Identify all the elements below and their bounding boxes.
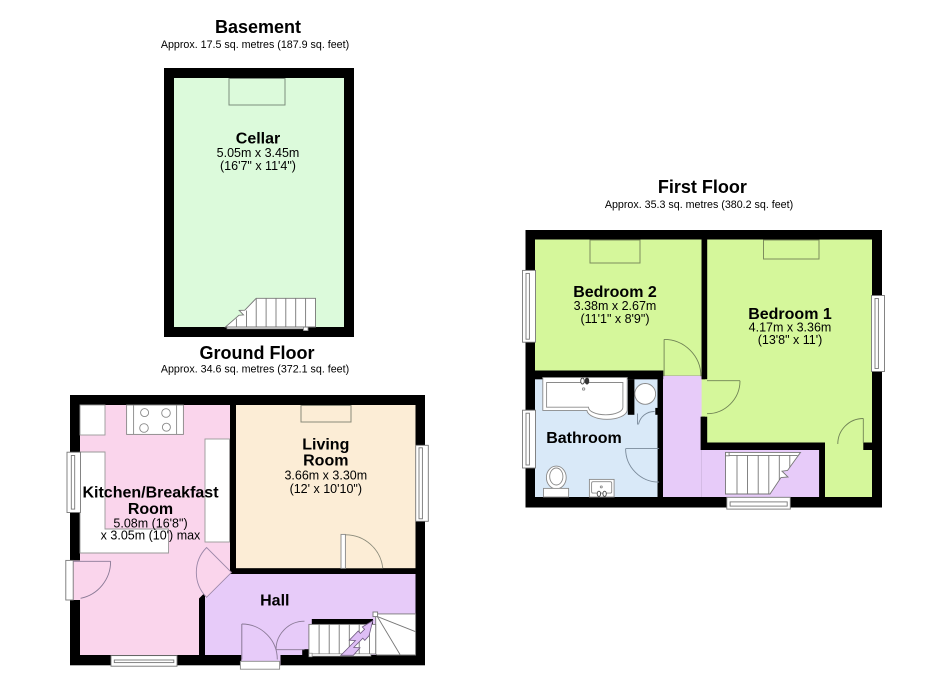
svg-text:Approx. 34.6 sq. metres (372.1: Approx. 34.6 sq. metres (372.1 sq. feet) [161,364,349,376]
svg-text:First Floor: First Floor [658,177,747,197]
svg-text:Living: Living [302,436,349,453]
svg-text:(12' x 10'10"): (12' x 10'10") [290,482,362,496]
svg-text:Approx. 35.3 sq. metres (380.2: Approx. 35.3 sq. metres (380.2 sq. feet) [605,199,793,211]
svg-text:Basement: Basement [215,17,301,37]
svg-text:Cellar: Cellar [236,131,280,148]
svg-text:x 3.05m (10') max: x 3.05m (10') max [101,529,201,543]
svg-text:Room: Room [303,453,348,470]
svg-text:3.66m x 3.30m: 3.66m x 3.30m [284,468,367,482]
svg-text:(11'1" x 8'9"): (11'1" x 8'9") [580,312,649,326]
svg-text:3.38m x 2.67m: 3.38m x 2.67m [574,299,657,313]
svg-text:Bathroom: Bathroom [546,430,622,447]
svg-text:Kitchen/Breakfast: Kitchen/Breakfast [82,485,219,502]
svg-text:Hall: Hall [260,593,289,610]
svg-text:Approx. 17.5 sq. metres (187.9: Approx. 17.5 sq. metres (187.9 sq. feet) [161,39,349,51]
svg-text:(13'8" x 11'): (13'8" x 11') [758,333,823,347]
svg-text:(16'7" x 11'4"): (16'7" x 11'4") [220,159,296,173]
svg-text:Room: Room [128,501,173,518]
svg-text:Ground Floor: Ground Floor [200,343,315,363]
